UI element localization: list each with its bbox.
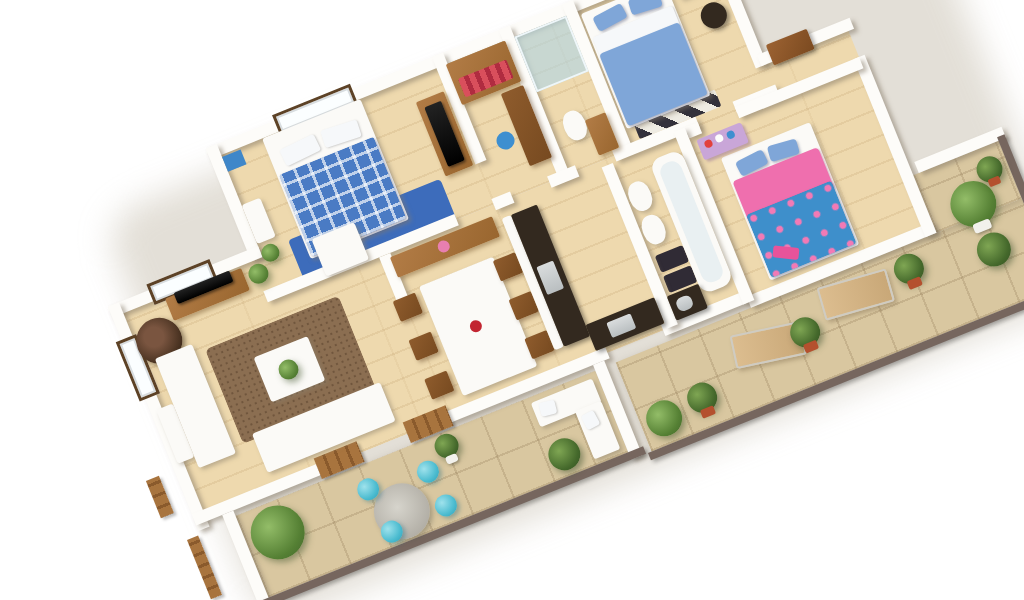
deck-left-board xyxy=(146,476,174,518)
render-canvas: { "meta": { "background_color": "#ffffff… xyxy=(0,0,1024,600)
kids-toy-car xyxy=(772,245,799,260)
floor-plan-3d-scene xyxy=(0,0,1024,600)
fence-left-post xyxy=(187,535,222,599)
